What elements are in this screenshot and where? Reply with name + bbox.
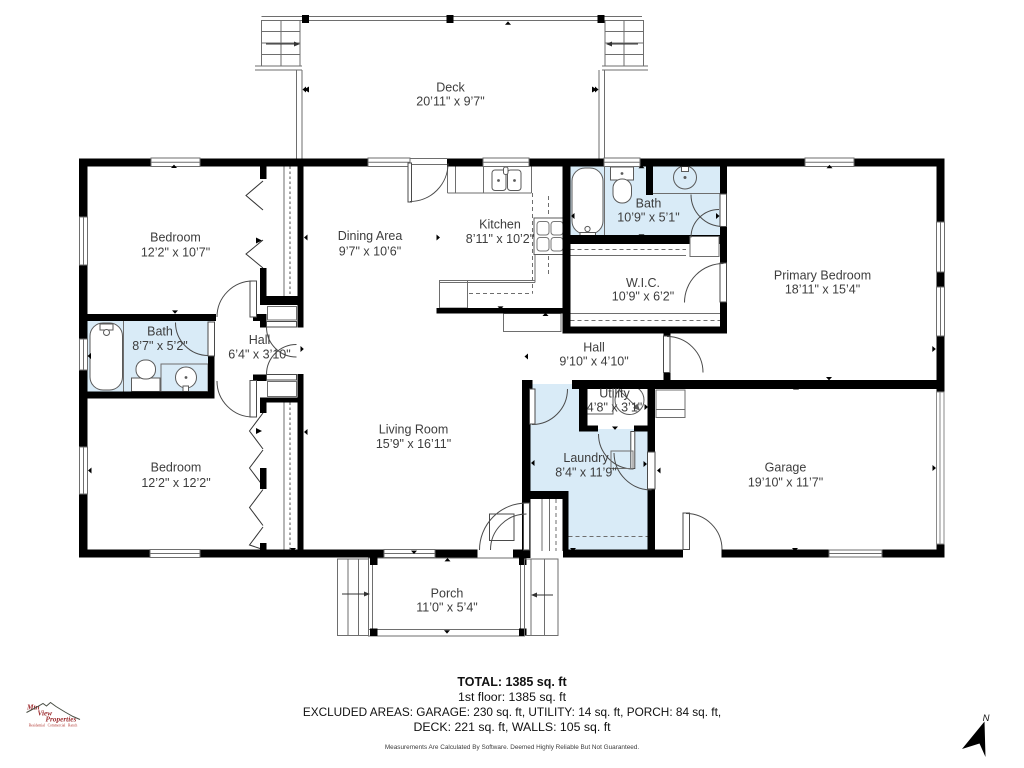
svg-text:12’2" x 10’7": 12’2" x 10’7": [141, 246, 210, 260]
svg-text:Living Room: Living Room: [379, 423, 448, 437]
svg-text:9’7" x 10’6": 9’7" x 10’6": [339, 245, 401, 259]
svg-text:Bath: Bath: [147, 325, 173, 339]
svg-text:10’9" x 6’2": 10’9" x 6’2": [612, 290, 674, 304]
svg-text:15’9" x 16’11": 15’9" x 16’11": [376, 437, 451, 451]
svg-text:Hall: Hall: [249, 333, 271, 347]
svg-text:8’4" x 11’9": 8’4" x 11’9": [555, 466, 616, 480]
svg-text:11’0" x 5’4": 11’0" x 5’4": [416, 601, 477, 615]
svg-text:18’11" x 15’4": 18’11" x 15’4": [785, 283, 860, 297]
svg-text:Porch: Porch: [431, 587, 464, 601]
svg-text:Bath: Bath: [636, 197, 662, 211]
svg-text:12’2" x 12’2": 12’2" x 12’2": [141, 476, 210, 490]
svg-text:N: N: [983, 713, 990, 724]
svg-text:1st floor: 1385 sq. ft: 1st floor: 1385 sq. ft: [458, 690, 567, 704]
svg-text:19’10" x 11’7": 19’10" x 11’7": [748, 476, 823, 490]
svg-text:Primary Bedroom: Primary Bedroom: [774, 269, 871, 283]
svg-text:8’7" x 5’2": 8’7" x 5’2": [132, 339, 187, 353]
svg-text:Utility: Utility: [599, 387, 630, 401]
svg-text:Deck: Deck: [436, 81, 465, 95]
svg-text:Laundry: Laundry: [563, 451, 609, 465]
svg-text:Garage: Garage: [765, 461, 807, 475]
svg-text:9’10" x 4’10": 9’10" x 4’10": [559, 355, 628, 369]
svg-text:20’11" x 9’7": 20’11" x 9’7": [416, 95, 484, 109]
svg-text:W.I.C.: W.I.C.: [626, 276, 660, 290]
svg-text:4’8" x 3’1": 4’8" x 3’1": [587, 401, 642, 415]
svg-text:Dining Area: Dining Area: [338, 229, 403, 243]
svg-text:EXCLUDED AREAS: GARAGE: 230 sq: EXCLUDED AREAS: GARAGE: 230 sq. ft, UTIL…: [303, 705, 721, 719]
svg-text:Measurements Are Calculated By: Measurements Are Calculated By Software.…: [385, 744, 640, 751]
svg-text:6’4" x 3’10": 6’4" x 3’10": [228, 348, 290, 362]
svg-text:Bedroom: Bedroom: [151, 461, 202, 475]
svg-text:Hall: Hall: [583, 341, 605, 355]
svg-text:8’11" x 10’2": 8’11" x 10’2": [466, 232, 534, 246]
svg-text:TOTAL: 1385 sq. ft: TOTAL: 1385 sq. ft: [457, 675, 567, 689]
svg-text:DECK: 221 sq. ft, WALLS: 105 s: DECK: 221 sq. ft, WALLS: 105 sq. ft: [413, 720, 611, 734]
svg-text:10’9" x 5’1": 10’9" x 5’1": [617, 211, 679, 225]
svg-text:Kitchen: Kitchen: [479, 218, 521, 232]
svg-text:Residential Commercial Ran: Residential Commercial Ranch: [29, 724, 78, 728]
svg-text:Bedroom: Bedroom: [150, 231, 201, 245]
